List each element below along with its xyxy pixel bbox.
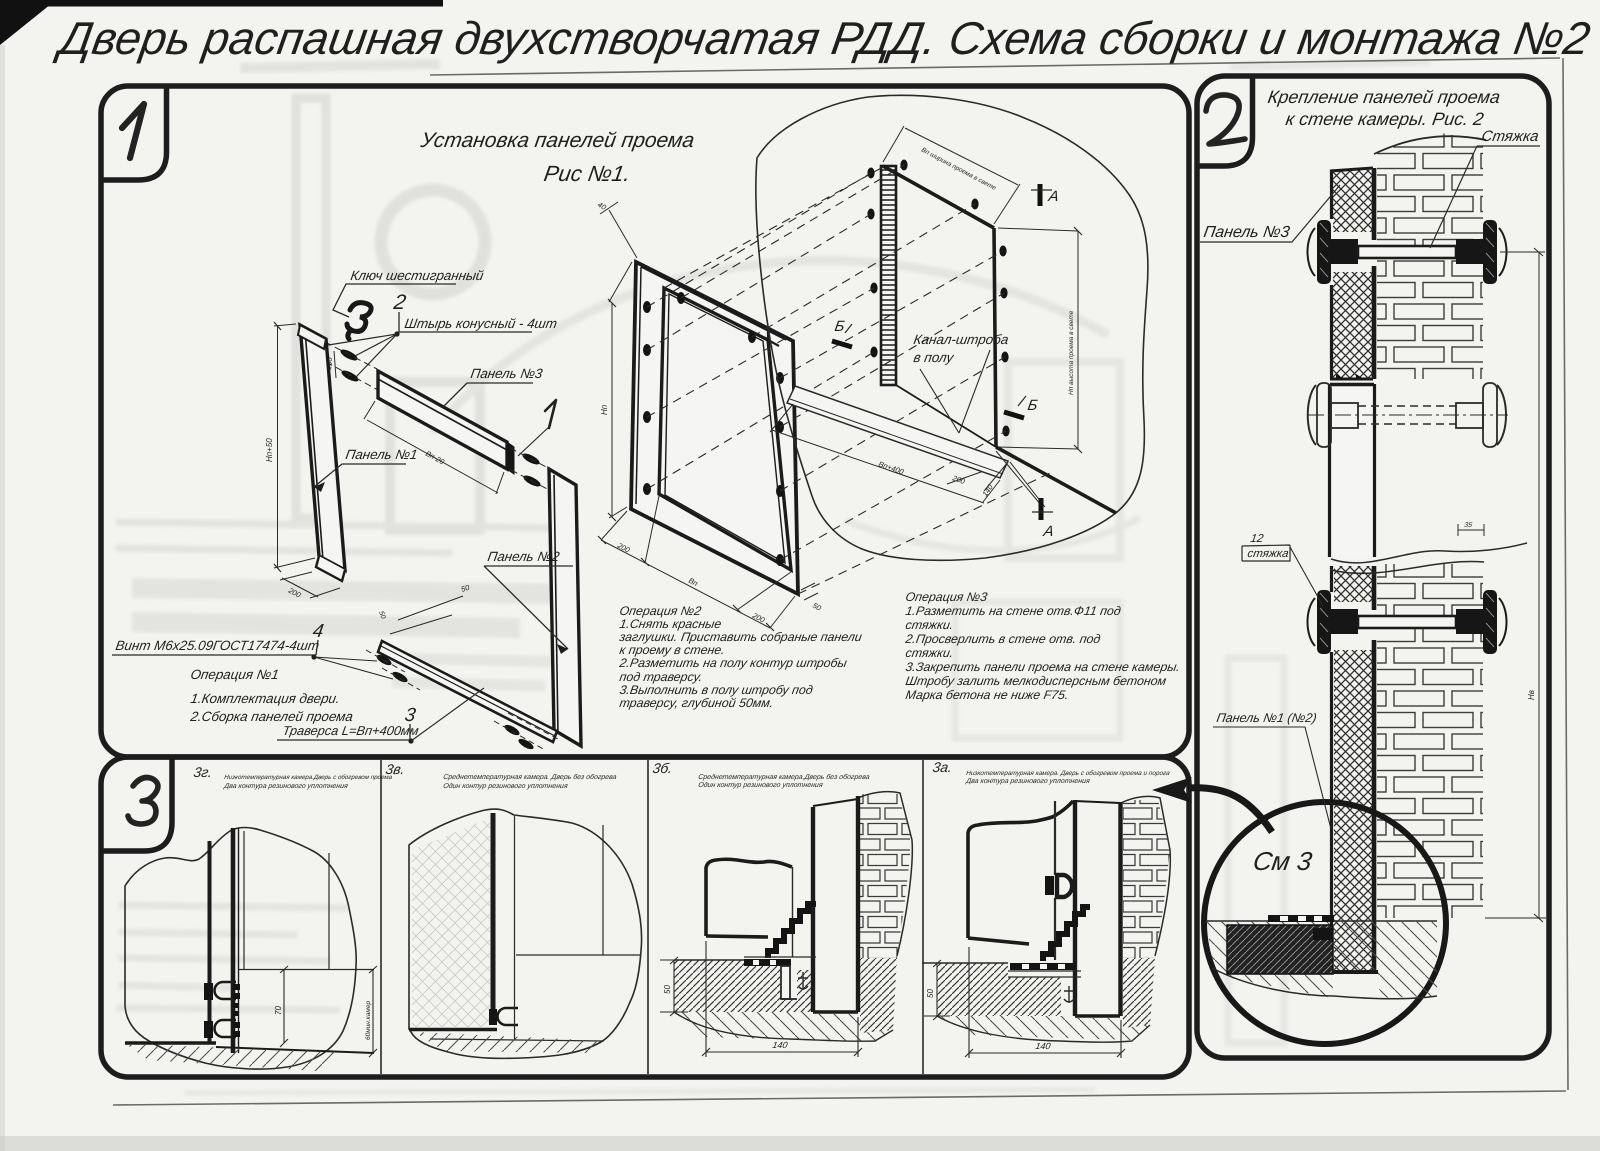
svg-text:3.Выполнить в полу штробу под: 3.Выполнить в полу штробу под — [619, 683, 814, 697]
svg-text:50: 50 — [663, 985, 672, 994]
svg-text:Штырь конусный - 4шт: Штырь конусный - 4шт — [404, 316, 559, 331]
svg-text:12: 12 — [1250, 533, 1265, 545]
svg-text:Винт М6х25.09ГОСТ17474-4шт: Винт М6х25.09ГОСТ17474-4шт — [115, 638, 321, 653]
svg-text:3в.: 3в. — [385, 761, 406, 777]
svg-text:2.Сборка панелей проема: 2.Сборка панелей проема — [189, 709, 355, 724]
svg-text:Канал-штроба: Канал-штроба — [913, 332, 1011, 347]
svg-text:60мин.камер: 60мин.камер — [365, 1001, 372, 1040]
svg-text:стяжки.: стяжки. — [905, 618, 955, 632]
svg-text:Нп+50: Нп+50 — [265, 438, 274, 462]
svg-text:Нп высота проема в свете: Нп высота проема в свете — [1068, 310, 1075, 395]
svg-text:в полу: в полу — [913, 350, 956, 365]
svg-text:Панель №3: Панель №3 — [1202, 223, 1291, 241]
svg-text:Траверса L=Вп+400мм: Траверса L=Вп+400мм — [282, 723, 420, 738]
svg-text:Операция №3: Операция №3 — [905, 590, 989, 604]
svg-text:См 3: См 3 — [1251, 846, 1314, 876]
svg-text:Ключ шестигранный: Ключ шестигранный — [350, 268, 486, 283]
svg-text:Марка бетона не ниже F75.: Марка бетона не ниже F75. — [905, 688, 1070, 702]
svg-text:140: 140 — [772, 1040, 789, 1050]
svg-text:Низкотемпературная камера.Двер: Низкотемпературная камера.Дверь с обогре… — [224, 774, 393, 781]
svg-text:Один контур резинового уплотне: Один контур резинового уплотнения — [698, 781, 824, 789]
svg-text:Штробу залить мелкодисперсным: Штробу залить мелкодисперсным бетоном — [905, 674, 1168, 688]
svg-text:Установка панелей проема: Установка панелей проема — [418, 129, 696, 152]
svg-text:траверсу, глубиной 50мм.: траверсу, глубиной 50мм. — [619, 696, 775, 710]
svg-text:3г.: 3г. — [193, 764, 214, 780]
svg-text:2.Разметить на полу контур штр: 2.Разметить на полу контур штробы — [618, 656, 848, 670]
svg-text:Панель №3: Панель №3 — [470, 366, 545, 381]
svg-text:Операция №2: Операция №2 — [619, 604, 703, 618]
svg-text:под траверсу.: под траверсу. — [619, 670, 704, 684]
svg-text:Два контура резинового уплотне: Два контура резинового уплотнения — [965, 778, 1091, 785]
svg-text:Операция №1: Операция №1 — [190, 667, 280, 682]
svg-text:3.Закрепить панели проема на с: 3.Закрепить панели проема на стене камер… — [905, 660, 1181, 674]
svg-text:1.Разметить на стене отв.Ф11 п: 1.Разметить на стене отв.Ф11 под — [905, 604, 1122, 618]
svg-text:к проему в стене.: к проему в стене. — [619, 643, 726, 657]
svg-text:Два контура резинового уплотне: Два контура резинового уплотнения — [223, 783, 349, 790]
svg-text:140: 140 — [1035, 1041, 1052, 1051]
svg-text:Крепление панелей проема: Крепление панелей проема — [1266, 87, 1501, 107]
svg-text:Нп: Нп — [600, 404, 609, 415]
svg-text:стяжки.: стяжки. — [905, 646, 955, 660]
svg-text:1.Снять красные: 1.Снять красные — [619, 617, 723, 631]
svg-text:70: 70 — [274, 1006, 283, 1015]
svg-text:Панель №1: Панель №1 — [345, 447, 419, 462]
svg-text:Стяжка: Стяжка — [1480, 128, 1540, 145]
svg-text:к стене камеры. Рис. 2: к стене камеры. Рис. 2 — [1284, 109, 1485, 129]
svg-text:стяжка: стяжка — [1247, 548, 1291, 560]
svg-text:Панель №2: Панель №2 — [487, 549, 562, 564]
svg-text:Дверь распашная двухстворчатая: Дверь распашная двухстворчатая РДД. Схем… — [51, 12, 1593, 64]
svg-text:Нв: Нв — [1527, 690, 1536, 700]
svg-text:3б.: 3б. — [652, 760, 674, 776]
svg-text:35: 35 — [1464, 522, 1473, 529]
svg-text:2.Просверлить в стене отв. п: 2.Просверлить в стене отв. под — [904, 632, 1102, 646]
svg-text:1.Комплектация двери.: 1.Комплектация двери. — [190, 691, 341, 706]
svg-text:заглушки. Приставить собраные: заглушки. Приставить собраные панели — [618, 630, 863, 644]
svg-text:Среднетемпературная камера. Дв: Среднетемпературная камера. Дверь без об… — [443, 773, 618, 781]
svg-text:3а.: 3а. — [932, 759, 954, 775]
svg-text:50: 50 — [926, 989, 935, 998]
svg-text:Рис №1.: Рис №1. — [542, 161, 632, 186]
svg-text:Среднетемпературная камера.Две: Среднетемпературная камера.Дверь без обо… — [698, 773, 871, 781]
svg-text:Один контур резинового уплотне: Один контур резинового уплотнения — [443, 782, 569, 790]
svg-text:Низкотемпературная камера. Две: Низкотемпературная камера. Дверь с обогр… — [966, 769, 1171, 777]
svg-text:Панель №1 (№2): Панель №1 (№2) — [1216, 711, 1318, 725]
